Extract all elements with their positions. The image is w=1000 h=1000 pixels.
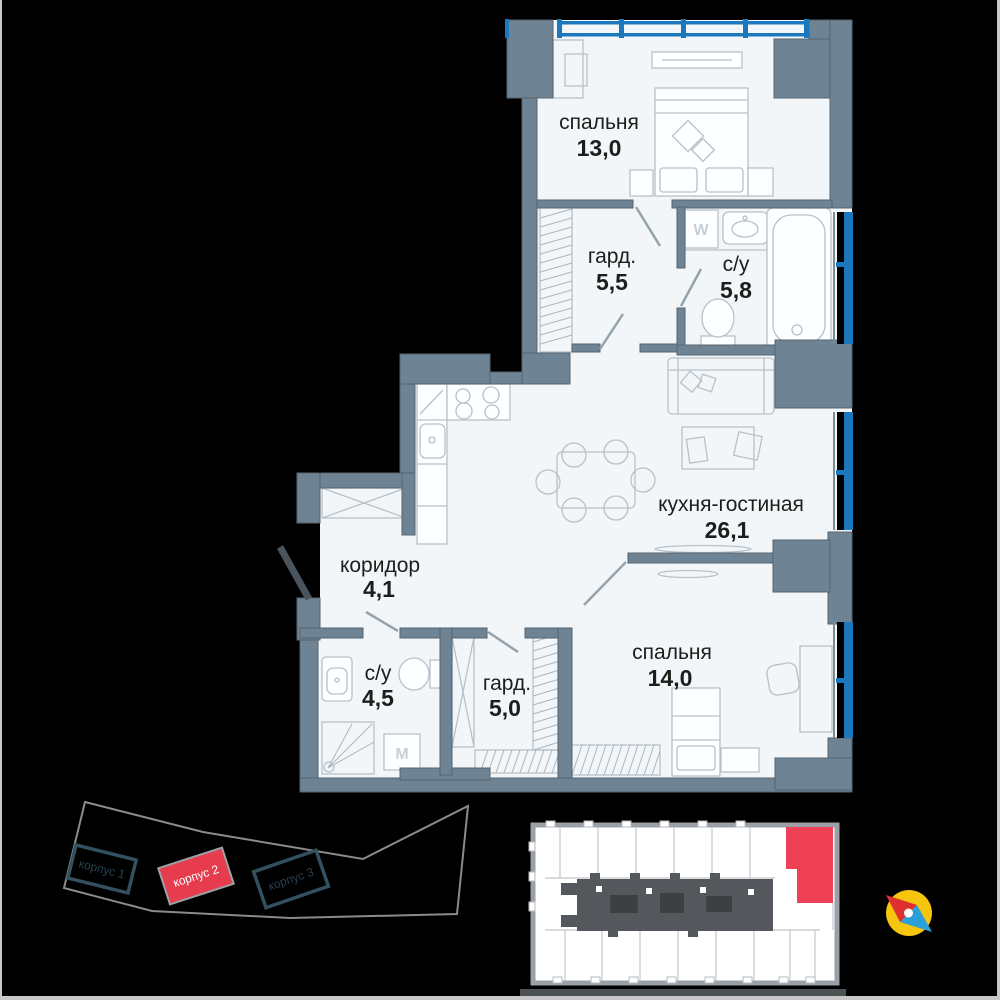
washing-machine-icon: W <box>685 210 718 248</box>
room-label-bathroom-1: с/у <box>723 253 750 276</box>
kitchen-counter-icon <box>417 384 447 544</box>
room-label-kitchen-living: кухня-гостиная <box>658 493 804 516</box>
bathtub-icon <box>767 208 831 352</box>
building-1-label: корпус 1 <box>77 857 126 882</box>
toilet-icon <box>701 299 735 350</box>
building-3-badge[interactable]: корпус 3 <box>254 850 329 907</box>
room-area-bedroom-1: 13,0 <box>577 135 622 161</box>
room-area-wardrobe-2: 5,0 <box>489 695 521 721</box>
building-3-label: корпус 3 <box>266 865 315 894</box>
toilet2-icon <box>399 658 442 690</box>
room-label-wardrobe-2: гард. <box>483 672 531 695</box>
room-area-corridor: 4,1 <box>363 576 395 602</box>
room-label-bedroom-2: спальня <box>632 641 712 664</box>
key-plan <box>520 821 846 996</box>
entrance-door-leaf <box>280 547 309 599</box>
key-plan-core <box>561 873 773 937</box>
compass-icon <box>886 890 932 936</box>
room-area-bathroom-2: 4,5 <box>362 685 394 711</box>
room-area-bedroom-2: 14,0 <box>648 665 693 691</box>
site-boundary <box>64 802 468 918</box>
site-plan: корпус 1 корпус 2 корпус 3 <box>64 802 468 918</box>
apartment-plan: W <box>280 19 853 792</box>
room-area-bathroom-1: 5,8 <box>720 277 752 303</box>
building-1-badge[interactable]: корпус 1 <box>68 845 136 893</box>
building-2-badge[interactable]: корпус 2 <box>158 848 233 905</box>
room-label-corridor: коридор <box>340 554 420 577</box>
floorplan-page: W <box>0 0 1000 1000</box>
washing-machine2-icon: M <box>384 734 420 770</box>
washer-top-letter: W <box>693 222 709 239</box>
tv-shelf-icon <box>652 52 742 68</box>
sink2-icon <box>322 657 352 701</box>
floorplan-canvas: W <box>0 0 1000 1000</box>
washer-bottom-letter: M <box>395 746 408 763</box>
stove-icon <box>447 384 510 420</box>
room-area-wardrobe-1: 5,5 <box>596 269 628 295</box>
room-area-kitchen-living: 26,1 <box>705 517 750 543</box>
room-label-wardrobe-1: гард. <box>588 245 636 268</box>
room-label-bedroom-1: спальня <box>559 111 639 134</box>
room-label-bathroom-2: с/у <box>365 662 392 685</box>
key-plan-ground-bar <box>520 989 846 996</box>
